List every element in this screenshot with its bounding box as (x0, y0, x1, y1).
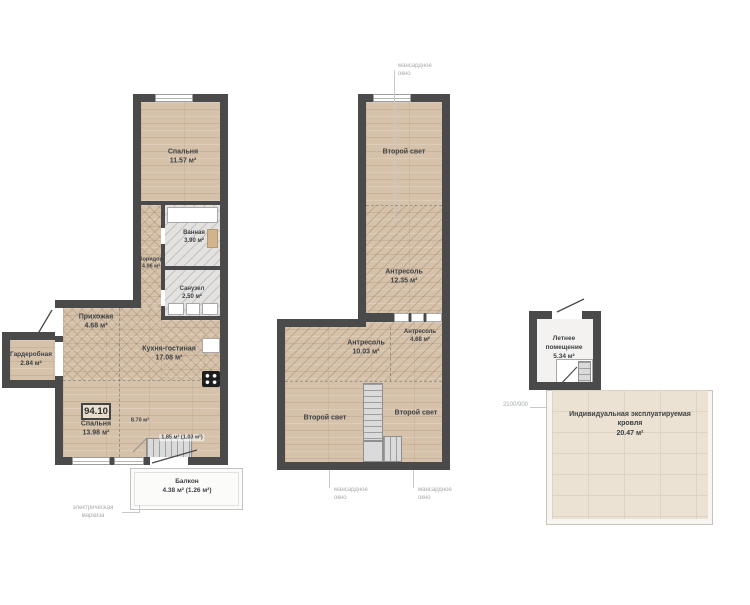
room-area: 4.68 м² (404, 336, 436, 344)
roof-dimension-text: 2100/900 (503, 402, 528, 408)
total-area-box: 94.10 (81, 403, 111, 420)
skylight-annotation-bottom-right: мансардное окно (418, 487, 466, 503)
room-label-balcony: Балкон 4.38 м² (1.26 м²) (163, 478, 212, 496)
room-area: 4.68 м² (79, 322, 114, 331)
room-area: 17.08 м² (142, 354, 196, 363)
room-area: 2.84 м² (2, 360, 60, 369)
room-name: Антресоль (385, 268, 423, 277)
room-label-roof-terrace: Индивидуальная эксплуатируемая кровля 20… (567, 410, 693, 438)
room-area: 3.90 м² (183, 237, 205, 245)
stair-cut-line (133, 438, 147, 452)
room-name: Спальня (168, 148, 198, 157)
room-area: 13.98 м² (81, 429, 111, 438)
skylight-annotation-text: мансардное окно (418, 487, 452, 501)
skylight-annotation-text: мансардное окно (398, 63, 432, 77)
room-name: Второй свет (383, 147, 426, 156)
room-label-wardrobe: Гардеробная 2.84 м² (2, 351, 60, 369)
room-label-summer-room: Летнее помещение 5.34 м² (537, 335, 591, 361)
roof-dimension-label: 2100/900 (481, 402, 528, 410)
room-area: 20.47 м² (567, 429, 693, 438)
stair-area-label: 8.70 м² (131, 417, 149, 424)
total-area-value: 94.10 (84, 406, 108, 417)
skylight-annotation-text: мансардное окно (334, 487, 368, 501)
room-name: Антресоль (347, 339, 385, 348)
room-label-bedroom-1: Спальня 11.57 м² (168, 148, 198, 167)
room-name: Кухня-гостиная (142, 345, 196, 354)
skylight-annotation-top: мансардное окно (398, 63, 446, 79)
stair-opening-area-label: 1.85 м² (1.03 м²) (159, 434, 204, 441)
room-area: 12.35 м² (385, 277, 423, 286)
room-label-bedroom-2: Спальня 13.98 м² (81, 420, 111, 439)
room-label-kitchen-living: Кухня-гостиная 17.08 м² (142, 345, 196, 364)
awning-annotation: электрическая маркиза (62, 505, 124, 521)
room-area: 4.38 м² (1.26 м²) (163, 487, 212, 496)
room-area: 10.03 м² (347, 348, 385, 357)
room-label-second-light-bottom-right: Второй свет (395, 408, 438, 417)
room-area: 8.70 м² (131, 417, 149, 424)
room-name: Спальня (81, 420, 111, 429)
room-label-mezzanine-left: Антресоль 10.03 м² (347, 339, 385, 358)
awning-annotation-text: электрическая маркиза (73, 505, 114, 519)
room-name: Балкон (163, 478, 212, 487)
room-name: Второй свет (395, 408, 438, 417)
room-name: Летнее помещение (537, 335, 591, 353)
room-name: Прихожая (79, 313, 114, 322)
room-label-hallway: Прихожая 4.68 м² (79, 313, 114, 332)
room-area: 2.50 м² (180, 293, 205, 301)
room-label-wc: Санузел 2.50 м² (180, 285, 205, 301)
room-name: Индивидуальная эксплуатируемая кровля (567, 410, 693, 429)
room-area: 11.57 м² (168, 157, 198, 166)
room-label-mezzanine-top: Антресоль 12.35 м² (385, 268, 423, 287)
room-name: Гардеробная (2, 351, 60, 360)
room-label-mezzanine-right: Антресоль 4.68 м² (404, 328, 436, 344)
room-area: 4.06 м² (139, 264, 163, 271)
room-area: 5.34 м² (537, 352, 591, 361)
room-label-second-light-top: Второй свет (383, 147, 426, 156)
room-label-bathroom: Ванная 3.90 м² (183, 229, 205, 245)
entrance-door-swing (36, 310, 52, 337)
floorplan-canvas: Спальня 11.57 м² Ванная 3.90 м² Коридор … (0, 0, 750, 605)
room-name: Санузел (180, 285, 205, 293)
skylight-annotation-bottom-left: мансардное окно (334, 487, 382, 503)
summer-room-door-swing (557, 299, 584, 312)
room-name: Ванная (183, 229, 205, 237)
room-name: Антресоль (404, 328, 436, 336)
balcony-door-swing (152, 450, 197, 463)
vestibule-door-swing (560, 367, 577, 385)
room-name: Второй свет (304, 413, 347, 422)
room-area: 1.85 м² (1.03 м²) (161, 434, 202, 441)
room-label-second-light-bottom-left: Второй свет (304, 413, 347, 422)
room-label-corridor: Коридор 4.06 м² (139, 257, 163, 272)
